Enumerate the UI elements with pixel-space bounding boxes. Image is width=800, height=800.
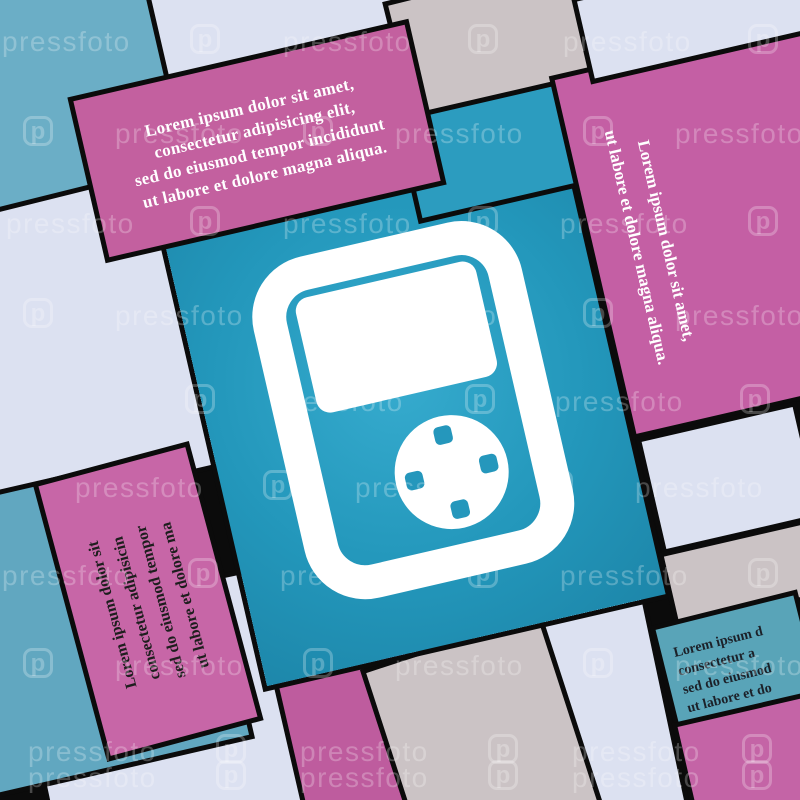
panel-lavender-right-mid <box>642 407 800 549</box>
control-button-bottom <box>449 498 471 520</box>
stock-image-canvas: Lorem ipsum dolor sit consectetur adipis… <box>0 0 800 800</box>
media-player-control-wheel <box>383 404 520 541</box>
control-button-left <box>404 470 426 492</box>
control-button-top <box>432 424 454 446</box>
portable-media-player-icon <box>240 209 587 612</box>
media-player-screen <box>293 259 500 416</box>
control-button-right <box>478 453 500 475</box>
